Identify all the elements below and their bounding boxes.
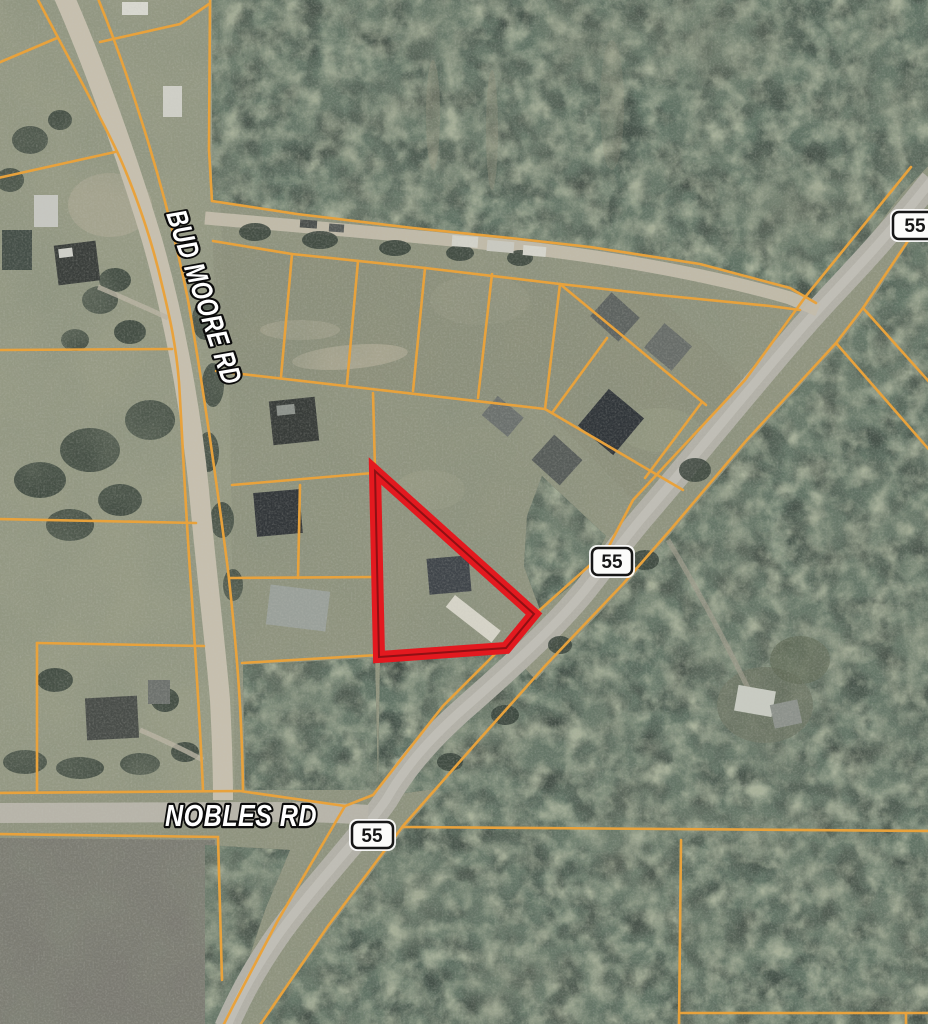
image-grain bbox=[0, 0, 928, 1024]
map-viewport[interactable]: BUD MOORE RD NOBLES RD 55 55 55 bbox=[0, 0, 928, 1024]
road-label-nobles-rd: NOBLES RD bbox=[165, 798, 317, 833]
route-shield-55-bottom: 55 bbox=[350, 820, 395, 850]
route-shield-number: 55 bbox=[361, 826, 383, 847]
route-shield-55-center: 55 bbox=[590, 546, 634, 577]
aerial-imagery: BUD MOORE RD NOBLES RD 55 55 55 bbox=[0, 0, 928, 1024]
route-shield-number: 55 bbox=[904, 216, 926, 237]
route-shield-number: 55 bbox=[601, 552, 623, 573]
route-shield-55-top-right: 55 bbox=[891, 210, 928, 241]
